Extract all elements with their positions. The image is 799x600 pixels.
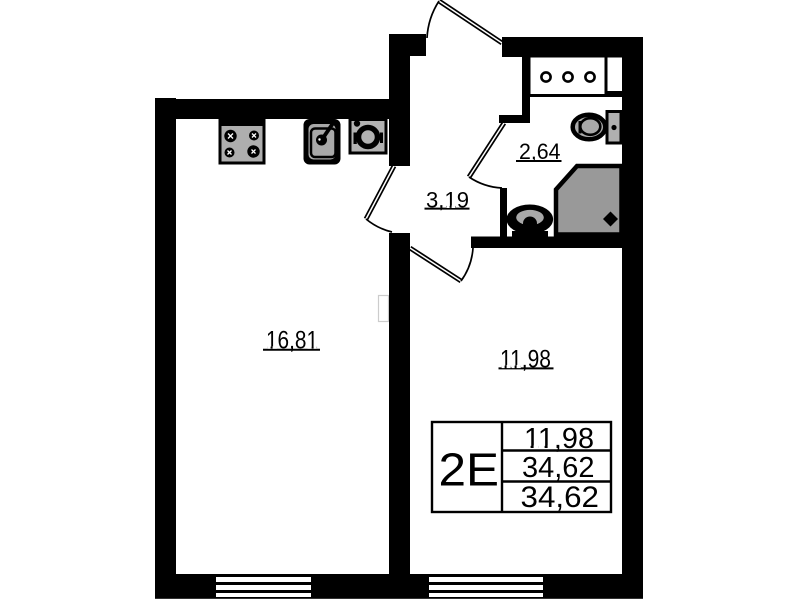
svg-text:11,98: 11,98 [524, 423, 594, 455]
svg-text:2E: 2E [439, 444, 500, 496]
svg-text:34,62: 34,62 [521, 481, 600, 514]
svg-text:34,62: 34,62 [522, 452, 595, 484]
